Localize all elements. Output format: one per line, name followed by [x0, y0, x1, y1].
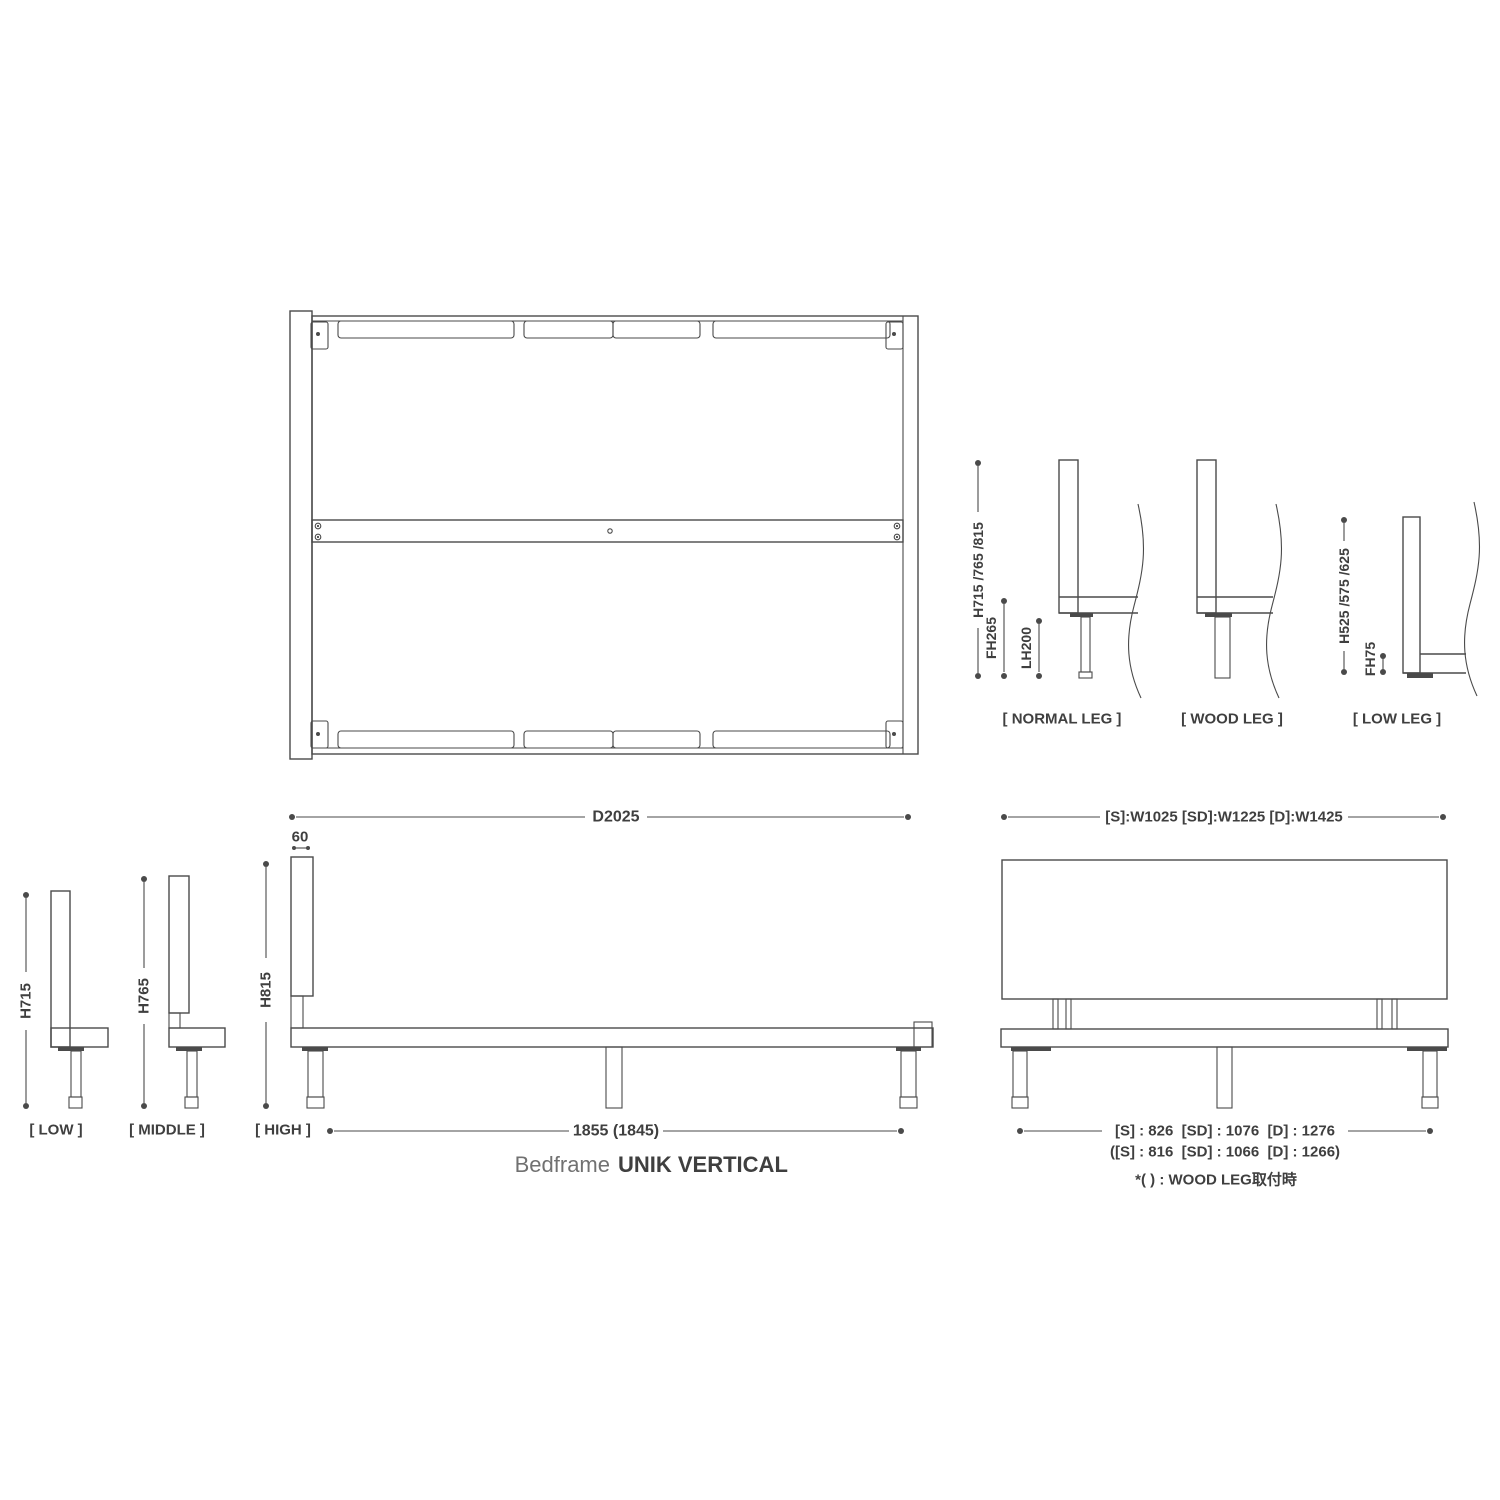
frame-rail: [169, 1028, 225, 1047]
dim-dot: [1036, 618, 1042, 624]
leg: [1423, 1051, 1437, 1097]
low-option-view: H715: [18, 891, 109, 1109]
break-line: [1129, 504, 1144, 698]
dim-dot: [1001, 598, 1007, 604]
normal-leg-view: [1059, 460, 1144, 698]
leg-mount: [1407, 1047, 1447, 1051]
dim-label-width: [S]:W1025 [SD]:W1225 [D]:W1425: [1105, 809, 1343, 826]
label-wood-leg: [ WOOD LEG ]: [1181, 711, 1283, 728]
frame-rail-front: [1001, 1029, 1448, 1047]
dim-dot: [23, 1103, 29, 1109]
headboard-panel: [291, 857, 313, 996]
dim-dot: [898, 1128, 904, 1134]
dim-label: LH200: [1018, 627, 1034, 669]
wood-leg-view: [1197, 460, 1282, 698]
leg-mount: [1011, 1047, 1051, 1051]
dim-dot: [1001, 673, 1007, 679]
headboard-post-front: [1392, 999, 1397, 1029]
slat: [338, 321, 514, 338]
label-low-leg: [ LOW LEG ]: [1353, 711, 1441, 728]
leg-mount: [302, 1047, 328, 1051]
headboard-post-front: [1377, 999, 1382, 1029]
corner-bracket: [311, 322, 328, 349]
screw: [317, 525, 319, 527]
headboard-panel-front: [1002, 860, 1447, 999]
dim-label: H815: [258, 972, 275, 1008]
center-leg: [606, 1047, 622, 1108]
dim-dot: [1440, 814, 1446, 820]
screw: [896, 536, 898, 538]
low-leg-view: H525 /575 /625 FH75: [1336, 502, 1480, 696]
headboard-post: [1059, 460, 1078, 613]
dim-dot: [975, 460, 981, 466]
screw: [317, 536, 319, 538]
foot-cap: [1012, 1097, 1028, 1108]
dim-dot: [141, 876, 147, 882]
dim-dot: [23, 892, 29, 898]
screw: [316, 732, 320, 736]
center-hole: [608, 529, 612, 533]
foot-cap: [900, 1097, 917, 1108]
headboard-bracket: [291, 996, 303, 1028]
slat: [613, 731, 700, 748]
slat: [338, 731, 514, 748]
bedframe-drawing: H715 /765 /815 FH265 LH200: [0, 0, 1500, 1500]
foot-cap: [307, 1097, 324, 1108]
dim-lh200: LH200: [1018, 618, 1042, 679]
frame-rail: [291, 1028, 933, 1047]
label-middle: [ MIDDLE ]: [129, 1122, 205, 1139]
foot-cap: [69, 1097, 82, 1108]
dim-dot: [263, 1103, 269, 1109]
title-product-name: UNIK VERTICAL: [618, 1152, 788, 1177]
drawing-title: Bedframe UNIK VERTICAL: [515, 1152, 788, 1177]
headboard-bracket: [169, 1013, 180, 1028]
dim-dot: [1017, 1128, 1023, 1134]
technical-drawing-page: H715 /765 /815 FH265 LH200: [0, 0, 1500, 1500]
screw: [896, 525, 898, 527]
screw: [316, 332, 320, 336]
leg-detail-views: H715 /765 /815 FH265 LH200: [970, 460, 1480, 728]
screw: [892, 332, 896, 336]
wood-leg: [1215, 617, 1230, 678]
dim-dot: [905, 814, 911, 820]
label-normal-leg: [ NORMAL LEG ]: [1003, 711, 1122, 728]
slat: [524, 731, 613, 748]
high-option-main-side-view: H815 60 D2025: [258, 809, 934, 1140]
dim-label: H715 /765 /815: [970, 522, 986, 618]
dim-dot: [975, 673, 981, 679]
dim-dot: [1341, 517, 1347, 523]
leg-mount: [896, 1047, 921, 1051]
headboard-post: [1403, 517, 1420, 673]
frame-rail: [51, 1028, 108, 1047]
dim-dot: [1001, 814, 1007, 820]
frame-outline-plan: [312, 316, 918, 754]
headboard-panel: [51, 891, 70, 1047]
title-prefix: Bedframe: [515, 1152, 610, 1177]
dim-label: H715: [18, 983, 35, 1019]
dim-label-leg-span: [S] : 826 [SD] : 1076 [D] : 1276: [1115, 1123, 1335, 1140]
dim-fh265: FH265: [983, 598, 1007, 679]
dim-dot: [327, 1128, 333, 1134]
label-low: [ LOW ]: [29, 1122, 82, 1139]
front-view: [S]:W1025 [SD]:W1225 [D]:W1425 [S] : 826…: [1001, 809, 1448, 1189]
dim-dot: [1427, 1128, 1433, 1134]
headboard-post-front: [1053, 999, 1058, 1029]
dim-label: H765: [136, 978, 153, 1014]
headboard-post: [1197, 460, 1216, 613]
side-views: H715 H765 H815 60: [18, 809, 934, 1140]
dim-label-60: 60: [292, 829, 309, 846]
slat: [524, 321, 613, 338]
dim-dot: [1036, 673, 1042, 679]
leg: [901, 1051, 916, 1097]
break-line: [1465, 502, 1480, 696]
headboard-bar-plan: [290, 311, 312, 759]
dim-dot: [289, 814, 295, 820]
headboard-panel: [169, 876, 189, 1013]
dim-label-leg-span: 1855 (1845): [573, 1123, 659, 1140]
foot-cap: [1422, 1097, 1438, 1108]
leg: [1081, 617, 1090, 672]
footboard-tab: [914, 1022, 932, 1047]
center-leg: [1217, 1047, 1232, 1108]
slat: [713, 321, 890, 338]
dim-dot: [141, 1103, 147, 1109]
leg: [187, 1051, 197, 1097]
dim-dot: [1341, 669, 1347, 675]
leg: [1013, 1051, 1027, 1097]
screw: [892, 732, 896, 736]
foot-cap: [1079, 672, 1092, 678]
label-high: [ HIGH ]: [255, 1122, 311, 1139]
dim-dot: [263, 861, 269, 867]
slat: [713, 731, 890, 748]
headboard-post-front: [1066, 999, 1071, 1029]
dim-label: FH265: [983, 617, 999, 659]
wood-leg-note: *( ) : WOOD LEG取付時: [1135, 1171, 1297, 1189]
plan-view: [290, 311, 918, 759]
dim-label: H525 /575 /625: [1336, 548, 1352, 644]
break-line: [1267, 504, 1282, 698]
dim-label: FH75: [1362, 642, 1378, 676]
leg: [308, 1051, 323, 1097]
dim-label-leg-span-wood: ([S] : 816 [SD] : 1066 [D] : 1266): [1110, 1144, 1340, 1161]
leg-mount: [58, 1047, 84, 1051]
leg-mount: [1205, 613, 1232, 617]
leg: [71, 1051, 81, 1097]
leg-mount: [176, 1047, 202, 1051]
foot-cap: [185, 1097, 198, 1108]
foot-pad: [1407, 673, 1433, 678]
dim-label-depth: D2025: [592, 809, 639, 826]
slat: [613, 321, 700, 338]
leg-mount: [1070, 613, 1093, 617]
middle-option-view: H765: [136, 876, 226, 1109]
